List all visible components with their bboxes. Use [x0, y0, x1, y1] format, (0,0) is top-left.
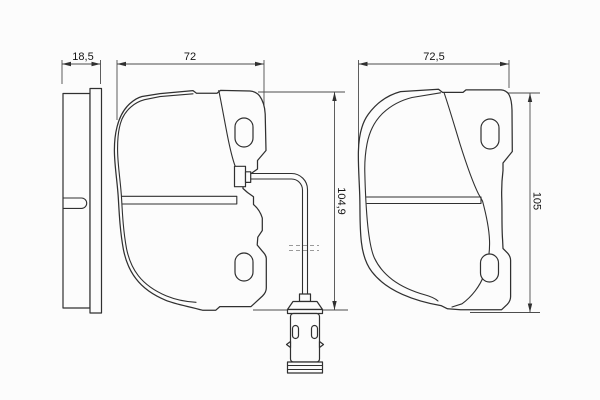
arrowhead-right	[500, 62, 509, 66]
connector-barb-right	[320, 342, 324, 348]
arrowhead-top	[332, 92, 336, 101]
wire-break-symbol	[289, 246, 319, 251]
pad-with-sensor-front-view	[114, 90, 266, 310]
sensor-connector-plug	[287, 294, 324, 373]
dimension-104-9-lines	[253, 92, 348, 310]
sensor-nub	[246, 172, 251, 183]
arrowhead-top	[528, 93, 532, 102]
guide-hole-bottom	[235, 253, 253, 281]
connector-window-left	[293, 326, 299, 339]
dimension-label-105: 105	[531, 192, 543, 210]
pad-side-view	[63, 89, 102, 314]
arrowhead-left	[117, 62, 126, 66]
arrowhead-bottom	[528, 304, 532, 313]
guide-hole-top	[235, 118, 253, 147]
dimension-label-18-5: 18,5	[72, 51, 93, 63]
arrowhead-bottom	[332, 301, 336, 310]
guide-hole-top	[481, 119, 499, 149]
connector-barb-left	[287, 342, 291, 348]
connector-cap	[288, 302, 323, 310]
dimension-18-5: 18,5	[62, 51, 101, 84]
connector-window-right	[312, 326, 318, 339]
dimension-label-104-9: 104,9	[335, 187, 347, 215]
arrowhead-left	[359, 62, 368, 66]
plain-pad-front-view	[358, 89, 512, 310]
arrowhead-right	[255, 62, 264, 66]
arrowhead-left	[62, 62, 71, 66]
technical-drawing-page: 18,5 72 72,5 104,9 105	[0, 0, 600, 400]
connector-neck	[300, 294, 311, 302]
dimension-label-72-5: 72,5	[423, 51, 444, 63]
dimension-label-72: 72	[184, 51, 196, 63]
sensor-body	[235, 166, 246, 186]
brake-pad-drawing: 18,5 72 72,5 104,9 105	[0, 0, 600, 400]
connector-end-cap	[288, 362, 323, 373]
dimension-104-9: 104,9	[253, 92, 348, 310]
guide-hole-bottom	[481, 254, 499, 282]
backplate-side	[90, 89, 102, 314]
